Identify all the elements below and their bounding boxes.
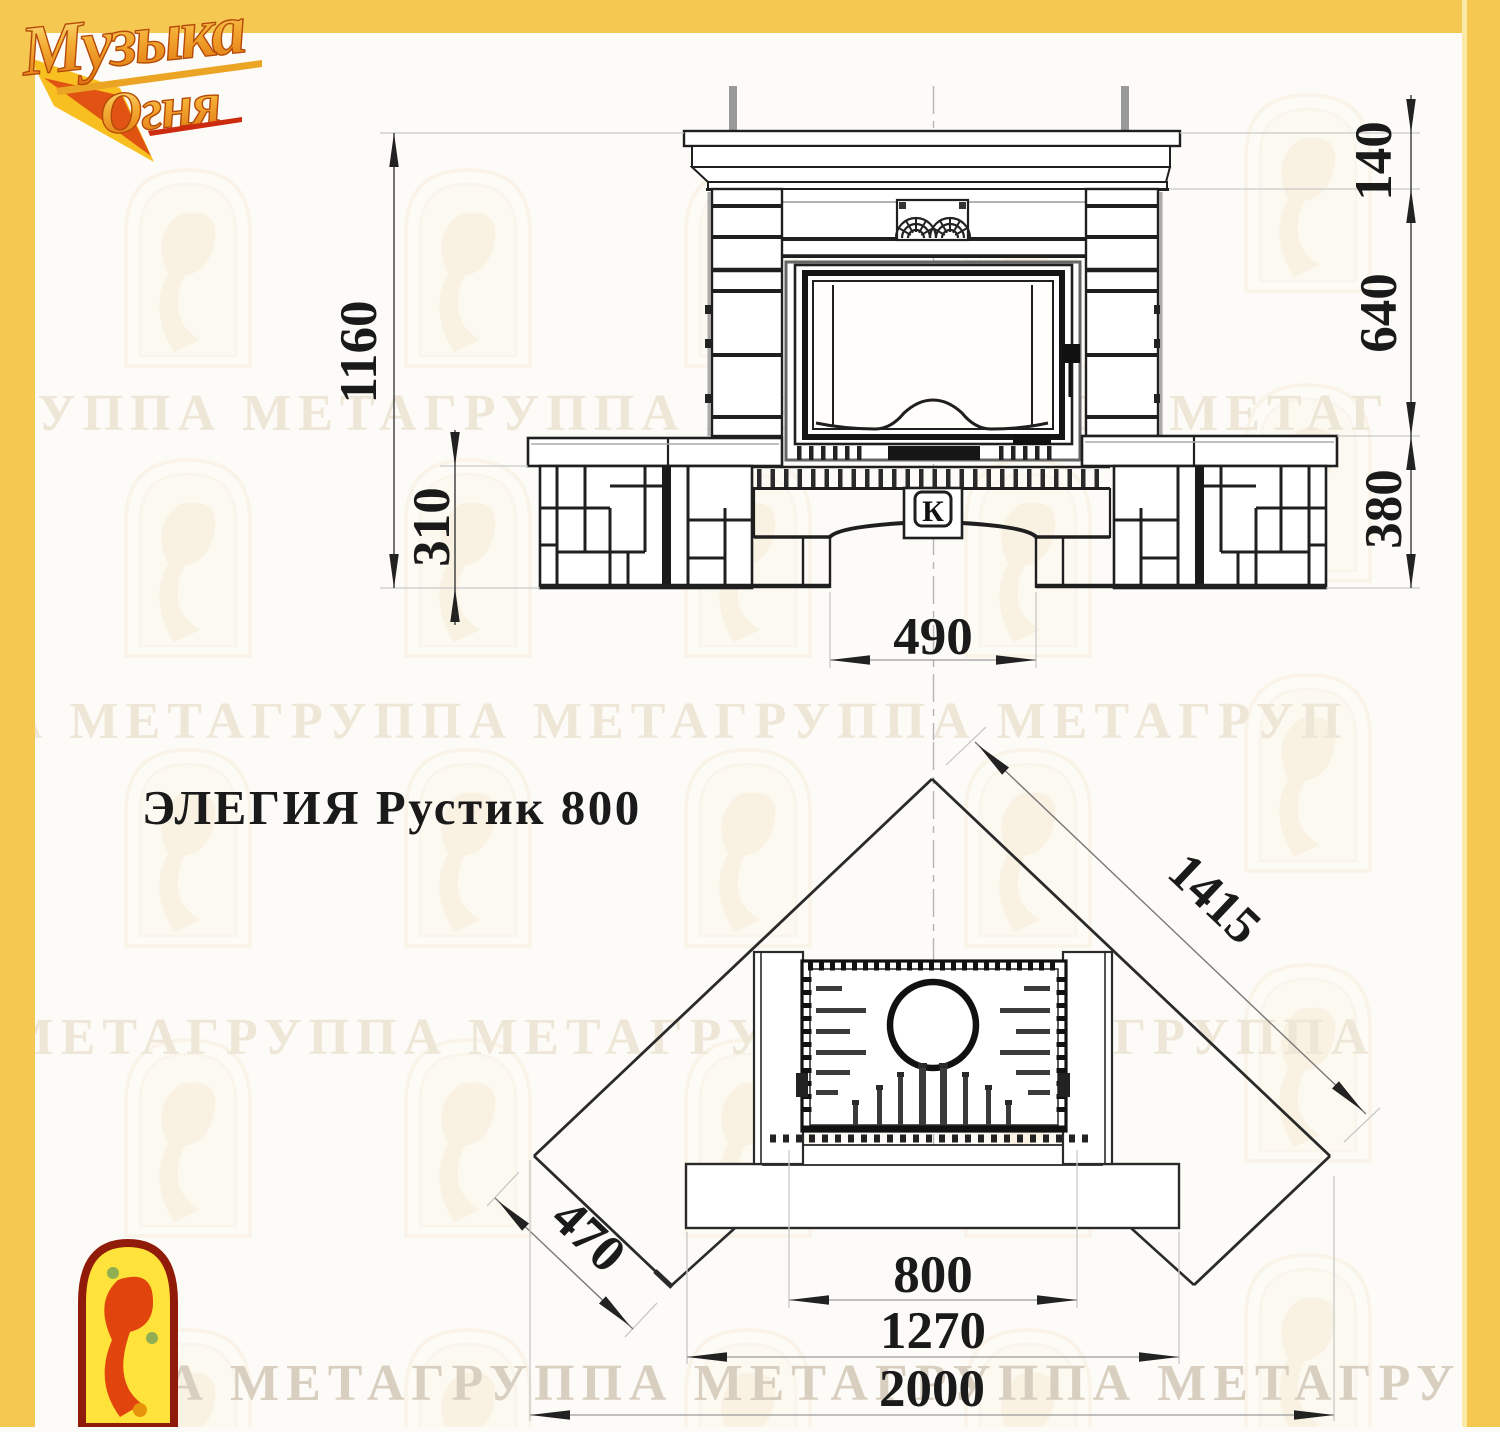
svg-text:2000: 2000 [879, 1360, 985, 1418]
svg-text:ЭЛЕГИЯ Рустик 800: ЭЛЕГИЯ Рустик 800 [142, 780, 642, 835]
svg-text:1160: 1160 [330, 300, 388, 403]
svg-text:310: 310 [403, 487, 461, 567]
svg-text:800: 800 [893, 1246, 973, 1304]
svg-text:1270: 1270 [880, 1302, 986, 1360]
svg-text:ГРУППА МЕТАГРУППА МЕТАГРУППА М: ГРУППА МЕТАГРУППА МЕТАГРУППА МЕТАГ [0, 385, 1391, 442]
svg-text:Огня: Огня [97, 69, 223, 147]
svg-text:380: 380 [1355, 469, 1413, 549]
svg-text:ППА МЕТАГРУППА МЕТАГРУППА МЕТА: ППА МЕТАГРУППА МЕТАГРУППА МЕТАГРУП [0, 693, 1348, 750]
svg-text:ПА МЕТАГРУППА МЕТАГРУППА МЕТАГ: ПА МЕТАГРУППА МЕТАГРУППА МЕТАГРУППА МЕТА [118, 1355, 1500, 1412]
svg-text:140: 140 [1345, 121, 1403, 201]
svg-text:А МЕТАГРУППА МЕТАГРУППА МЕТАГР: А МЕТАГРУППА МЕТАГРУППА МЕТАГРУППА [0, 1009, 1375, 1066]
svg-text:490: 490 [893, 608, 973, 666]
svg-text:К: К [922, 495, 944, 528]
svg-text:640: 640 [1350, 273, 1408, 353]
